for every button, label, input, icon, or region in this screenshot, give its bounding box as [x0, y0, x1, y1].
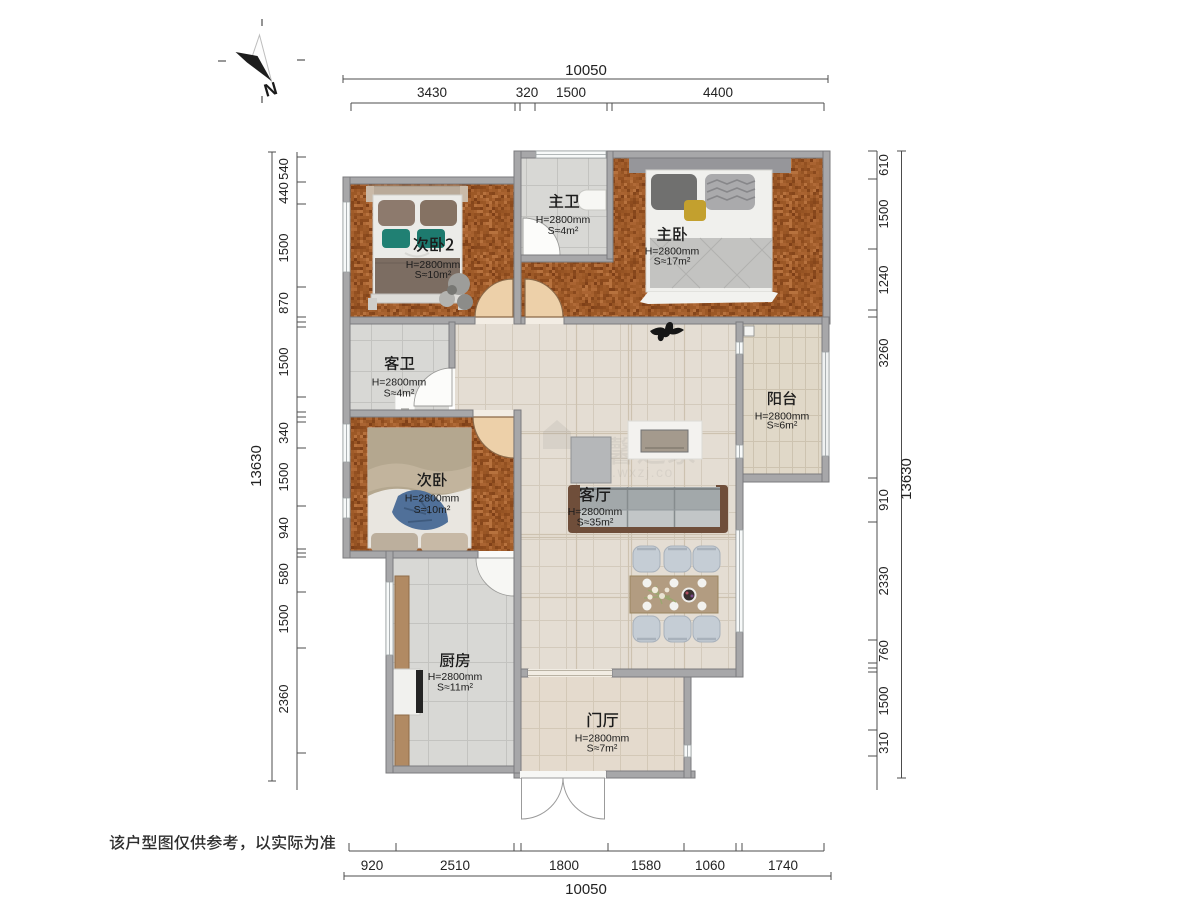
svg-text:340: 340 [276, 422, 291, 444]
svg-text:S≈4m²: S≈4m² [548, 225, 579, 237]
svg-text:S≈35m²: S≈35m² [577, 517, 614, 529]
svg-text:320: 320 [516, 85, 539, 100]
svg-text:1800: 1800 [549, 858, 579, 873]
svg-text:540: 540 [276, 158, 291, 180]
svg-text:S≈6m²: S≈6m² [767, 420, 798, 432]
svg-text:4400: 4400 [703, 85, 733, 100]
svg-text:S≈7m²: S≈7m² [587, 743, 618, 755]
svg-text:1500: 1500 [276, 348, 291, 377]
svg-text:13630: 13630 [248, 445, 265, 487]
svg-text:S≈11m²: S≈11m² [437, 682, 473, 694]
svg-text:10050: 10050 [565, 881, 607, 898]
svg-text:1500: 1500 [276, 234, 291, 263]
svg-text:3260: 3260 [876, 339, 891, 368]
svg-text:310: 310 [876, 732, 891, 754]
svg-text:S≈17m²: S≈17m² [654, 256, 691, 268]
svg-text:S≈10m²: S≈10m² [414, 504, 451, 516]
svg-text:3430: 3430 [417, 85, 447, 100]
svg-text:1500: 1500 [276, 605, 291, 634]
svg-text:S≈4m²: S≈4m² [384, 388, 415, 400]
svg-text:10050: 10050 [565, 62, 607, 79]
svg-text:1500: 1500 [556, 85, 586, 100]
svg-text:2360: 2360 [276, 685, 291, 714]
svg-text:13630: 13630 [898, 458, 915, 500]
svg-text:1500: 1500 [876, 687, 891, 716]
svg-text:760: 760 [876, 640, 891, 662]
svg-text:1580: 1580 [631, 858, 661, 873]
svg-text:870: 870 [276, 292, 291, 314]
svg-text:440: 440 [276, 182, 291, 204]
svg-text:2330: 2330 [876, 567, 891, 596]
svg-text:1500: 1500 [876, 200, 891, 229]
svg-text:610: 610 [876, 154, 891, 176]
svg-text:H=2800mm: H=2800mm [405, 493, 460, 505]
svg-text:580: 580 [276, 563, 291, 585]
svg-text:920: 920 [361, 858, 384, 873]
svg-text:1500: 1500 [276, 463, 291, 492]
svg-text:910: 910 [876, 489, 891, 511]
svg-text:1060: 1060 [695, 858, 725, 873]
svg-text:2510: 2510 [440, 858, 470, 873]
svg-text:1740: 1740 [768, 858, 798, 873]
svg-text:S≈10m²: S≈10m² [415, 269, 452, 281]
svg-text:1240: 1240 [876, 266, 891, 295]
svg-text:940: 940 [276, 517, 291, 539]
